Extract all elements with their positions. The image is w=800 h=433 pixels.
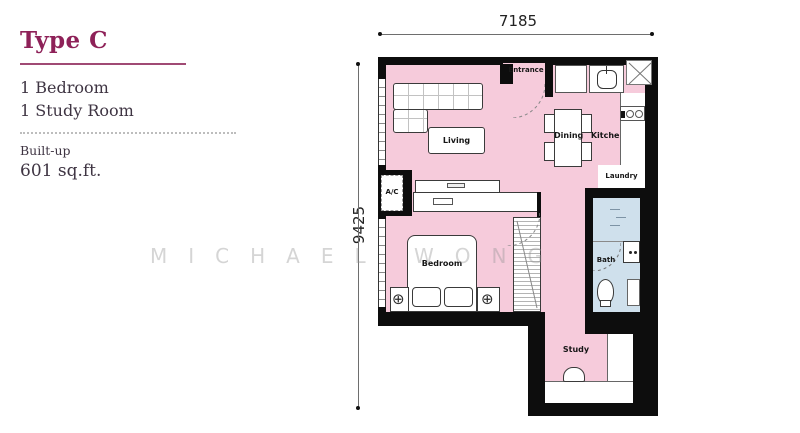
built-up-value: 601 sq.ft. [20,161,250,181]
info-panel: Type C 1 Bedroom 1 Study Room Built-up 6… [20,27,250,181]
bedroom-door-arc [507,213,540,246]
faucet-icon [606,66,607,74]
burner-icon [635,110,643,118]
study-chair [563,367,585,382]
wall-bath-top [585,188,658,198]
floor-plan: A/C Living Bedroom ⊕ ⊕ Dining Kitchen [378,57,658,416]
dimension-height-line [358,64,359,408]
wall-bath-left [585,196,593,312]
feature-bedroom: 1 Bedroom [20,76,250,99]
cooktop-knob [621,111,625,118]
sofa-chaise [393,109,428,133]
lamp-icon: ⊕ [481,292,494,307]
dimension-dot [356,406,360,410]
room-label-bath: Bath [589,257,623,265]
tv-set [447,183,465,188]
burner-icon [626,110,634,118]
feature-study: 1 Study Room [20,99,250,122]
pillow [444,287,473,307]
study-desk-side [607,334,633,381]
vanity-dot [634,251,637,254]
dotted-divider [20,132,236,134]
room-label-living: Living [428,137,485,146]
dining-chair [544,142,555,161]
room-label-entrance: Entrance [504,67,548,75]
window [378,219,386,307]
window [378,79,386,165]
room-label-bedroom: Bedroom [407,260,477,269]
room-label-ac: A/C [381,189,403,197]
dimension-dot [378,32,382,36]
bath-vanity [623,241,640,263]
title-underline [20,63,186,65]
duct-cross-icon [627,61,652,85]
wall-entrance-divider [545,57,553,97]
dimension-width-line [381,34,652,35]
shower-spray [616,217,626,218]
floor-corridor [545,312,585,334]
kitchen-sink-counter [589,65,624,93]
kitchen-counter [620,93,645,165]
built-up-label: Built-up [20,143,250,158]
dimension-width: 7185 [378,12,658,30]
dimension-dot [650,32,654,36]
floorplan-page: Type C 1 Bedroom 1 Study Room Built-up 6… [0,0,800,433]
washer [555,65,587,93]
console-drawer [433,198,453,205]
room-label-dining: Dining [554,132,582,141]
shower-spray [610,209,620,210]
shower-spray [610,225,620,226]
dimension-height: 9425 [350,195,368,255]
pillow [412,287,441,307]
lamp-icon: ⊕ [392,292,405,307]
dining-chair [581,142,592,161]
service-duct [626,60,652,85]
room-label-laundry: Laundry [598,173,645,181]
sofa-main [393,83,483,110]
entrance-door-arc [511,84,545,118]
study-desk [545,381,633,403]
wall-bath-right [640,198,645,312]
dimension-dot [356,62,360,66]
sink-basin [597,70,617,89]
plan-type-title: Type C [20,27,250,54]
cooktop [620,106,645,121]
toilet-base [600,300,611,307]
shaft [627,279,640,306]
room-label-study: Study [545,346,607,355]
vanity-dot [629,251,632,254]
